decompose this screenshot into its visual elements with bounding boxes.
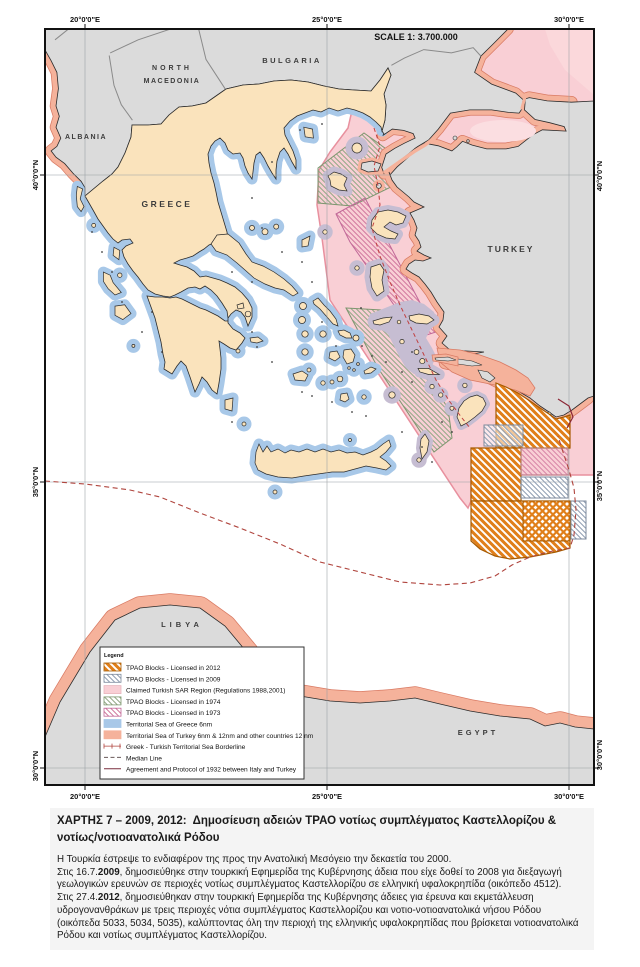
svg-text:Legend: Legend bbox=[104, 653, 124, 659]
svg-text:NORTH: NORTH bbox=[152, 65, 192, 72]
svg-text:30°0'0"N: 30°0'0"N bbox=[595, 740, 604, 770]
svg-text:30°0'0"E: 30°0'0"E bbox=[554, 15, 584, 24]
svg-text:Median Line: Median Line bbox=[126, 755, 162, 762]
svg-text:BULGARIA: BULGARIA bbox=[262, 56, 322, 65]
svg-text:Claimed Turkish SAR Region (Re: Claimed Turkish SAR Region (Regulations … bbox=[126, 688, 285, 695]
svg-text:LIBYA: LIBYA bbox=[161, 620, 203, 629]
svg-text:Territorial Sea of Turkey 6nm: Territorial Sea of Turkey 6nm & 12nm and… bbox=[126, 733, 314, 740]
svg-text:TPAO Blocks - Licensed in 1973: TPAO Blocks - Licensed in 1973 bbox=[126, 710, 221, 717]
svg-text:TPAO Blocks - Licensed in 2009: TPAO Blocks - Licensed in 2009 bbox=[126, 676, 221, 683]
svg-text:Greek - Turkish Territorial Se: Greek - Turkish Territorial Sea Borderli… bbox=[126, 744, 246, 751]
svg-text:TPAO Blocks - Licensed in 2012: TPAO Blocks - Licensed in 2012 bbox=[126, 665, 221, 672]
svg-text:25°0'0"E: 25°0'0"E bbox=[312, 15, 342, 24]
svg-text:MACEDONIA: MACEDONIA bbox=[144, 78, 201, 85]
svg-text:35°0'0"N: 35°0'0"N bbox=[595, 471, 604, 501]
svg-text:40°0'0"N: 40°0'0"N bbox=[595, 161, 604, 191]
svg-text:TPAO Blocks - Licensed in 1974: TPAO Blocks - Licensed in 1974 bbox=[126, 699, 221, 706]
svg-text:35°0'0"N: 35°0'0"N bbox=[31, 467, 40, 497]
svg-text:TURKEY: TURKEY bbox=[488, 244, 535, 254]
svg-text:ALBANIA: ALBANIA bbox=[65, 134, 107, 141]
svg-text:Territorial Sea of Greece 6nm: Territorial Sea of Greece 6nm bbox=[126, 722, 213, 729]
svg-text:Agreement and Protocol of 1932: Agreement and Protocol of 1932 between I… bbox=[126, 767, 297, 774]
svg-text:EGYPT: EGYPT bbox=[458, 728, 498, 737]
svg-text:25°0'0"E: 25°0'0"E bbox=[312, 792, 342, 801]
svg-text:30°0'0"N: 30°0'0"N bbox=[31, 751, 40, 781]
svg-text:20°0'0"E: 20°0'0"E bbox=[70, 792, 100, 801]
svg-text:GREECE: GREECE bbox=[142, 199, 193, 209]
svg-text:20°0'0"E: 20°0'0"E bbox=[70, 15, 100, 24]
svg-text:SCALE 1: 3.700.000: SCALE 1: 3.700.000 bbox=[374, 32, 458, 42]
svg-text:40°0'0"N: 40°0'0"N bbox=[31, 160, 40, 190]
svg-text:30°0'0"E: 30°0'0"E bbox=[554, 792, 584, 801]
